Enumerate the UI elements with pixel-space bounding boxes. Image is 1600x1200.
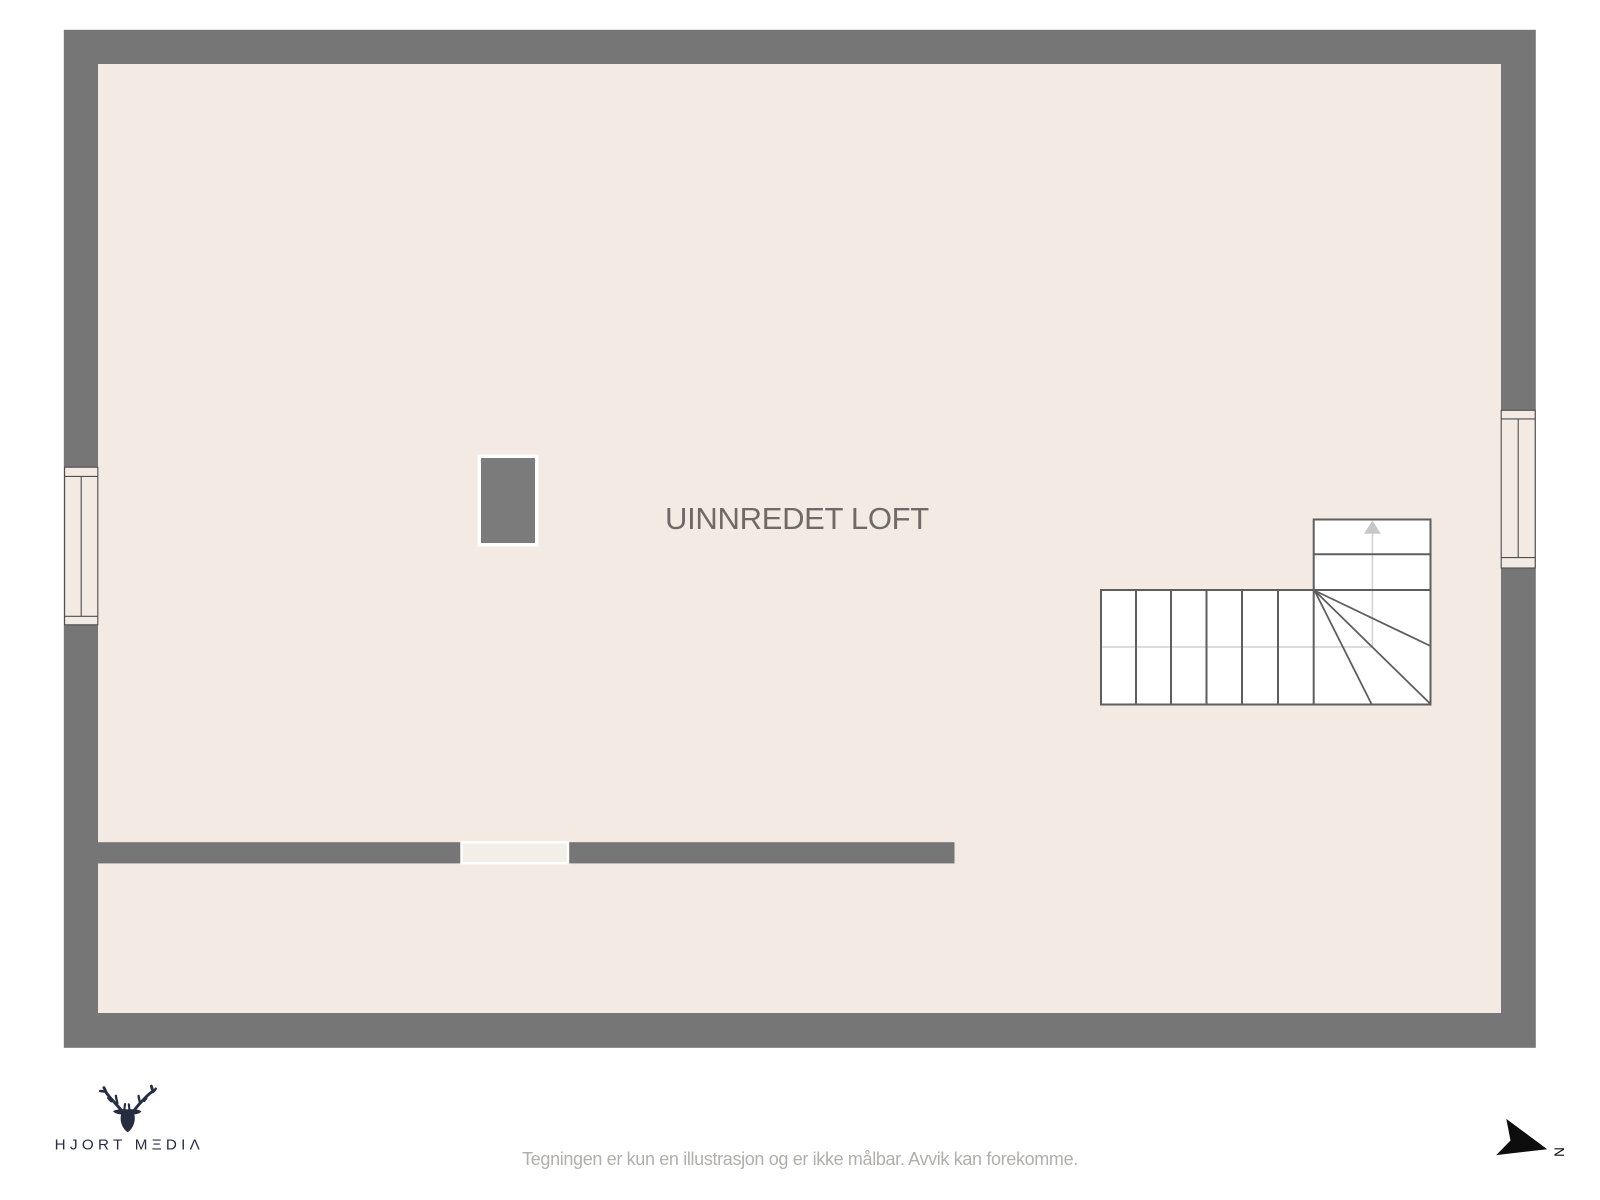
- svg-text:UINNREDET LOFT: UINNREDET LOFT: [665, 501, 929, 536]
- svg-text:Tegningen er kun en illustrasj: Tegningen er kun en illustrasjon og er i…: [522, 1149, 1078, 1169]
- svg-text:N: N: [1551, 1147, 1566, 1157]
- svg-text:HJORT MΞDIΛ: HJORT MΞDIΛ: [55, 1136, 204, 1153]
